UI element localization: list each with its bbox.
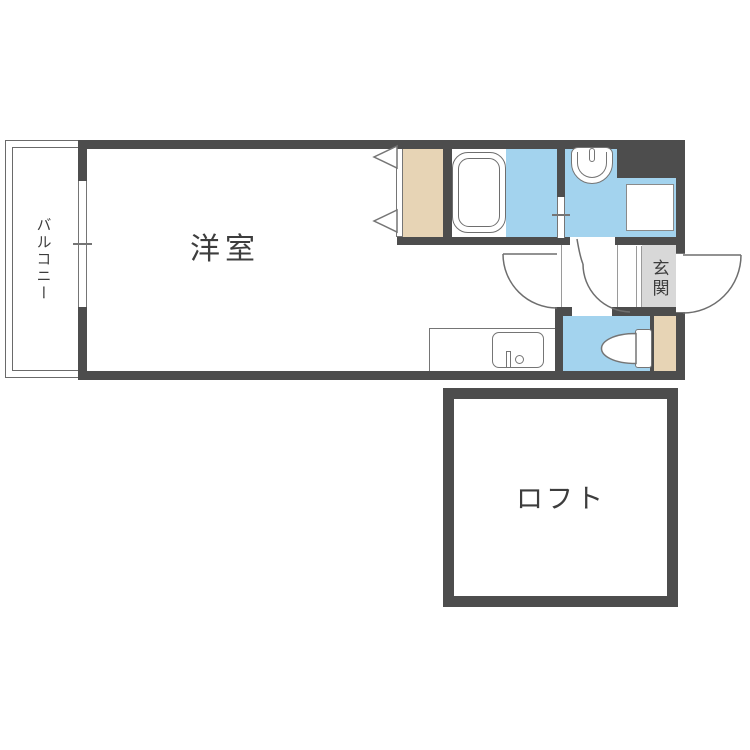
- window-bath-tick: [552, 214, 570, 216]
- washbasin-faucet: [589, 148, 595, 162]
- doorframe-western: [561, 245, 562, 307]
- balcony-label: バルコニー: [31, 208, 57, 310]
- wall-under-wet-right: [615, 237, 676, 245]
- entrance-step-line-1: [636, 246, 637, 307]
- wall-toilet-left: [555, 316, 563, 371]
- doorframe-washroom: [617, 245, 618, 307]
- window-bath: [557, 197, 565, 238]
- washing-machine-space: [626, 184, 674, 231]
- entrance-step-line-2: [641, 246, 642, 307]
- wall-right-lower: [676, 313, 685, 371]
- kitchen-faucet: [506, 351, 511, 368]
- loft-wall-left: [443, 388, 454, 607]
- folding-door-closet: [403, 149, 443, 237]
- wall-left-lower: [78, 307, 87, 371]
- wall-toilet-top-right: [612, 307, 676, 316]
- entrance-label: 玄関: [648, 252, 670, 306]
- door-entrance: [683, 255, 741, 313]
- loft-wall-bottom: [443, 596, 678, 607]
- western-room-label: 洋室: [160, 226, 290, 266]
- wall-right-upper: [676, 149, 685, 253]
- wall-closet-bath: [443, 149, 452, 245]
- door-washroom: [577, 239, 630, 312]
- wall-bath-washroom: [557, 149, 565, 197]
- kitchen-faucet-knob: [515, 355, 524, 364]
- wall-left-upper: [78, 149, 87, 181]
- window-balcony-tick: [73, 243, 92, 245]
- loft-label: ロフト: [505, 478, 617, 514]
- fold-door-lower-icon: [374, 210, 397, 232]
- floor-plan-page: { "plan": { "type": "japanese-apartment-…: [0, 0, 750, 750]
- wall-under-wet-left: [397, 237, 570, 245]
- bath-room-wet-floor: [506, 149, 557, 237]
- fold-door-upper-icon: [374, 146, 397, 168]
- entry-side-closet: [654, 316, 676, 371]
- entrance-door-gap: [676, 253, 685, 313]
- bathtub-inner: [458, 158, 500, 227]
- wall-corner-block: [617, 149, 676, 178]
- toilet-tank: [635, 329, 652, 368]
- wall-bottom: [78, 371, 685, 380]
- wall-toilet-top-left: [555, 307, 572, 316]
- closet-door-panel: [396, 148, 403, 237]
- loft-wall-right: [667, 388, 678, 607]
- door-western-room: [503, 254, 557, 308]
- loft-wall-top: [443, 388, 678, 399]
